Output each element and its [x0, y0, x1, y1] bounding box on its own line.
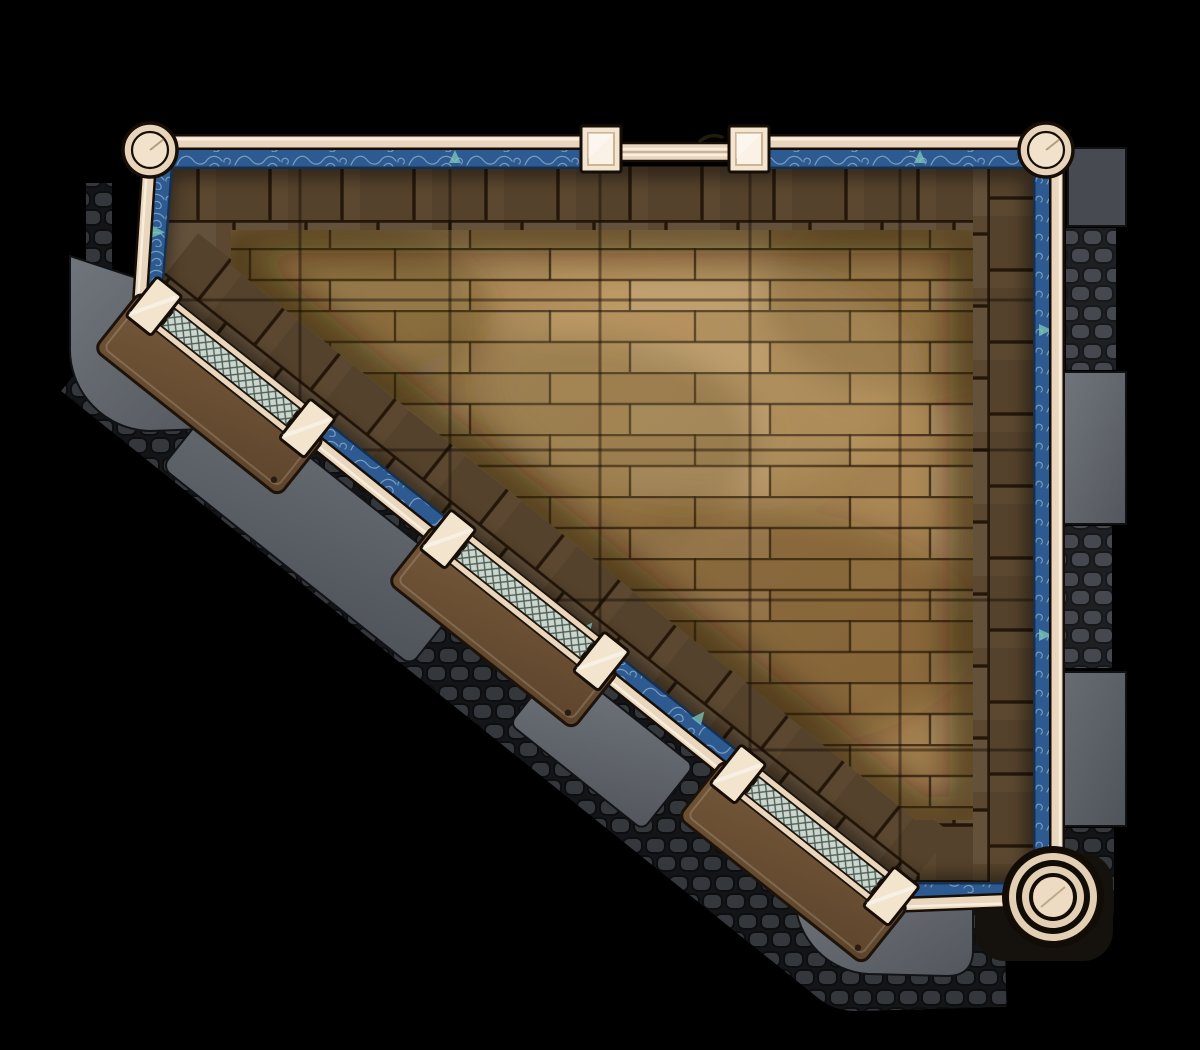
stone-slab-block: [1064, 372, 1126, 524]
gate-latch[interactable]: [700, 136, 722, 141]
rail-top-left-segment: [155, 139, 583, 142]
gate-bars: [618, 143, 732, 161]
map-stage: [0, 0, 1200, 1050]
stone-slab-block: [1068, 148, 1126, 226]
stone-slab-block: [1064, 672, 1126, 826]
rail-top-right-segment: [768, 139, 1043, 142]
floor-highlight: [490, 270, 910, 490]
cobble-block: [1066, 228, 1116, 370]
corner-post-top-left: [123, 123, 177, 177]
gate-post-right: [729, 126, 769, 172]
corner-post-top-right: [1019, 123, 1073, 177]
gate[interactable]: [581, 126, 769, 172]
corner-post-bottom-right: [1002, 846, 1104, 948]
gate-post-left: [581, 126, 621, 172]
stone-column-right: [1058, 148, 1126, 948]
cobble-block: [1064, 526, 1112, 668]
rail-right-segment: [1057, 152, 1060, 892]
battle-map-canvas[interactable]: [0, 0, 1200, 1050]
